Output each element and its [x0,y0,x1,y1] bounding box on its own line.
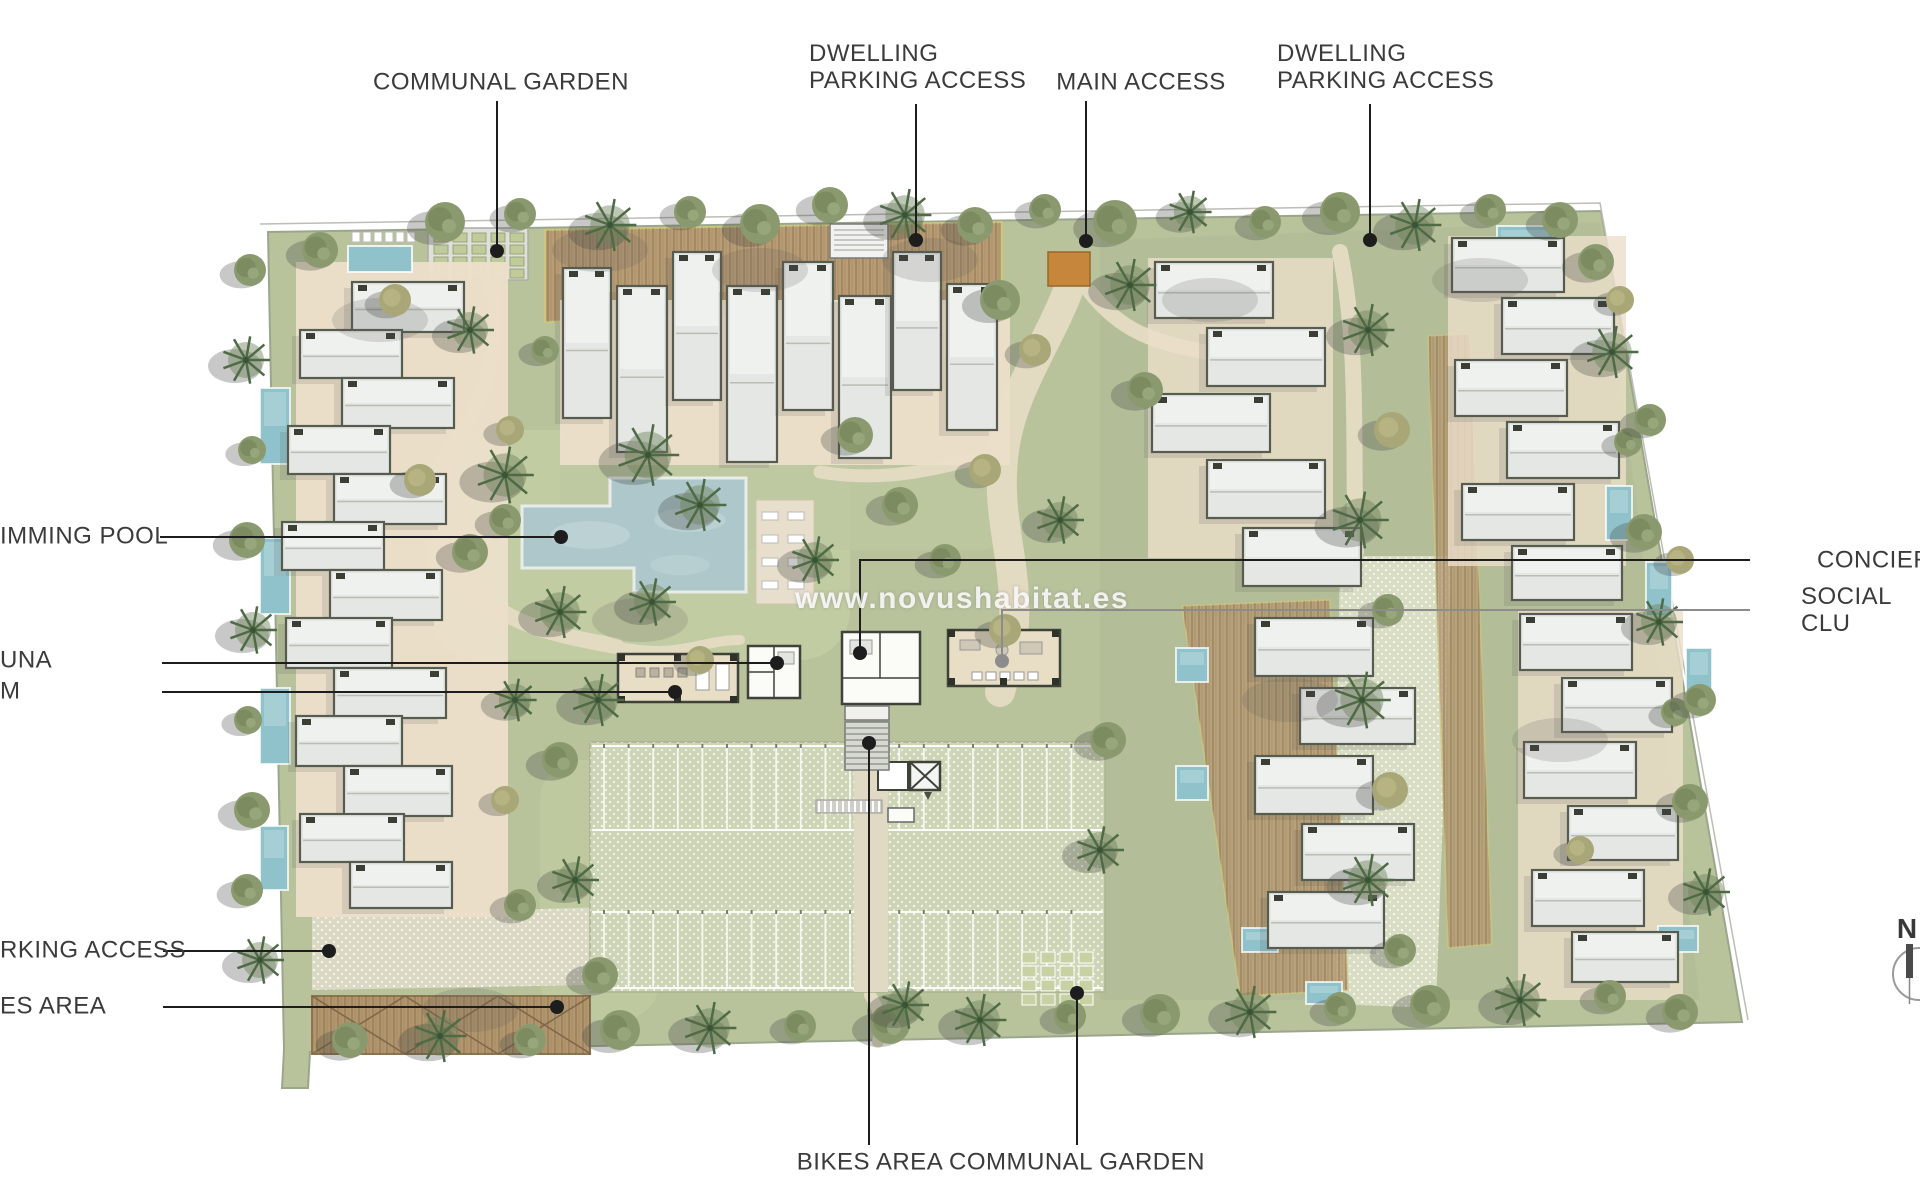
leader-dot-social-club [995,654,1009,668]
leader-dot-concierge [853,646,867,660]
leader-dot-swimming-pool [554,530,568,544]
leader-dot-dwelling-parking-access-left [909,233,923,247]
label-dwelling-parking-access-left: DWELLING PARKING ACCESS [809,40,1026,94]
leader-dot-bikes-area-left [550,1000,564,1014]
label-communal-garden-bottom: COMMUNAL GARDEN [949,1149,1205,1176]
label-main-access: MAIN ACCESS [1056,69,1226,96]
label-swimming-pool: IMMING POOL [0,523,168,550]
label-social-club: SOCIAL CLU [1801,583,1920,637]
label-concierge: CONCIERG [1817,547,1920,574]
label-bikes-area-left: ES AREA [0,993,106,1020]
compass-north-label: N [1897,913,1917,945]
leader-dot-dwelling-parking-access-right [1363,233,1377,247]
watermark: www.novushabitat.es [795,582,1129,616]
label-gym: M [0,678,21,705]
leader-dot-parking-access [322,944,336,958]
label-parking-access: RKING ACCESS [0,937,186,964]
leader-dot-sauna [770,656,784,670]
label-communal-garden-top: COMMUNAL GARDEN [373,69,629,96]
compass-icon [1893,944,1920,1004]
leader-dot-gym [668,685,682,699]
label-sauna: UNA [0,647,52,674]
leader-dot-communal-garden-top [490,244,504,258]
leader-dot-bikes-area-bottom [862,736,876,750]
site-plan-page: COMMUNAL GARDEN DWELLING PARKING ACCESS … [0,0,1920,1200]
label-dwelling-parking-access-right: DWELLING PARKING ACCESS [1277,40,1494,94]
label-bikes-area-bottom: BIKES AREA [797,1149,943,1176]
leader-dot-communal-garden-bottom [1070,986,1084,1000]
leader-dot-main-access [1079,234,1093,248]
